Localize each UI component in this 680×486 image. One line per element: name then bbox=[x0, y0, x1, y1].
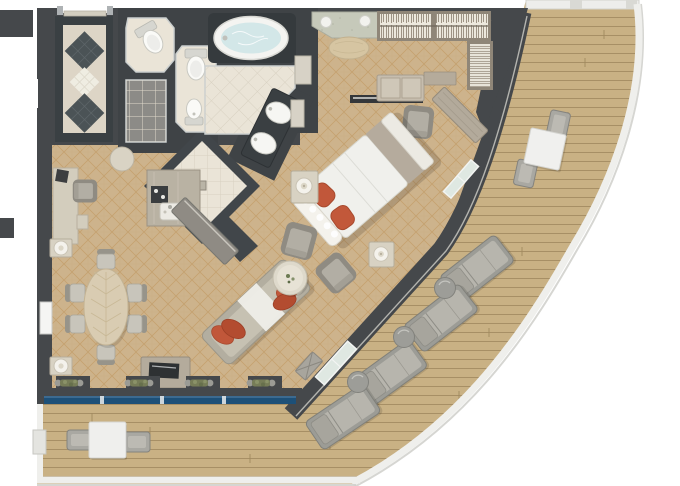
basin-icon bbox=[321, 17, 332, 28]
bathtub bbox=[208, 13, 296, 63]
corridor-notch bbox=[30, 79, 38, 108]
corridor-wall-stub bbox=[0, 218, 14, 238]
toilet-icon bbox=[185, 49, 207, 80]
dining-chair bbox=[127, 315, 147, 333]
desk-accessory bbox=[55, 169, 69, 183]
window-planter bbox=[247, 380, 276, 387]
table-lamp-icon bbox=[374, 247, 388, 261]
desk-chair bbox=[73, 179, 97, 202]
dining-chair bbox=[127, 284, 147, 302]
entry-door-leaf bbox=[64, 11, 106, 16]
toilet-room bbox=[126, 18, 174, 72]
tub-water bbox=[221, 23, 281, 54]
window-mullion bbox=[222, 396, 226, 404]
window-planter bbox=[125, 380, 154, 387]
veranda-chair bbox=[124, 432, 150, 452]
bar-tray bbox=[151, 186, 168, 203]
shelf-tower-icon bbox=[470, 44, 490, 87]
dining-chair bbox=[97, 249, 115, 269]
dining-chair bbox=[97, 345, 115, 365]
service-door bbox=[40, 302, 52, 334]
window-planter bbox=[55, 380, 84, 387]
window-mullion bbox=[100, 396, 104, 404]
door-jamb bbox=[107, 6, 113, 15]
floor-plan-page bbox=[0, 0, 680, 486]
door-jamb bbox=[57, 6, 63, 15]
entry-foyer bbox=[55, 16, 113, 142]
floor-plan-canvas bbox=[0, 0, 680, 486]
round-stool bbox=[110, 147, 134, 171]
railing-top-band bbox=[526, 0, 639, 9]
round-side-table bbox=[435, 278, 456, 299]
basin-icon bbox=[360, 16, 371, 27]
bidet-icon bbox=[185, 99, 203, 125]
desk-side-shelf bbox=[424, 72, 456, 85]
marble-pedestal-lamp bbox=[50, 239, 72, 257]
desk-return bbox=[77, 215, 88, 229]
round-side-table bbox=[348, 372, 369, 393]
corridor-wall-stub bbox=[0, 10, 33, 37]
round-side-table bbox=[394, 327, 415, 348]
linen-room-fill bbox=[126, 80, 166, 142]
railing-post bbox=[570, 0, 582, 9]
marble-pedestal-lamp bbox=[50, 357, 72, 375]
dining-chair bbox=[65, 284, 85, 302]
window-mullion bbox=[160, 396, 164, 404]
railing-left-post bbox=[33, 430, 46, 454]
oval-pouf bbox=[329, 37, 369, 59]
tub-faucet bbox=[223, 36, 228, 41]
wall-niche-shelf bbox=[291, 100, 304, 127]
window-planter bbox=[185, 380, 214, 387]
wall-niche-shelf bbox=[295, 56, 311, 84]
table-lamp-icon bbox=[296, 178, 312, 194]
nightstand-with-lamp bbox=[369, 242, 394, 267]
dining-chair bbox=[65, 315, 85, 333]
nightstand-with-lamp bbox=[291, 171, 318, 203]
